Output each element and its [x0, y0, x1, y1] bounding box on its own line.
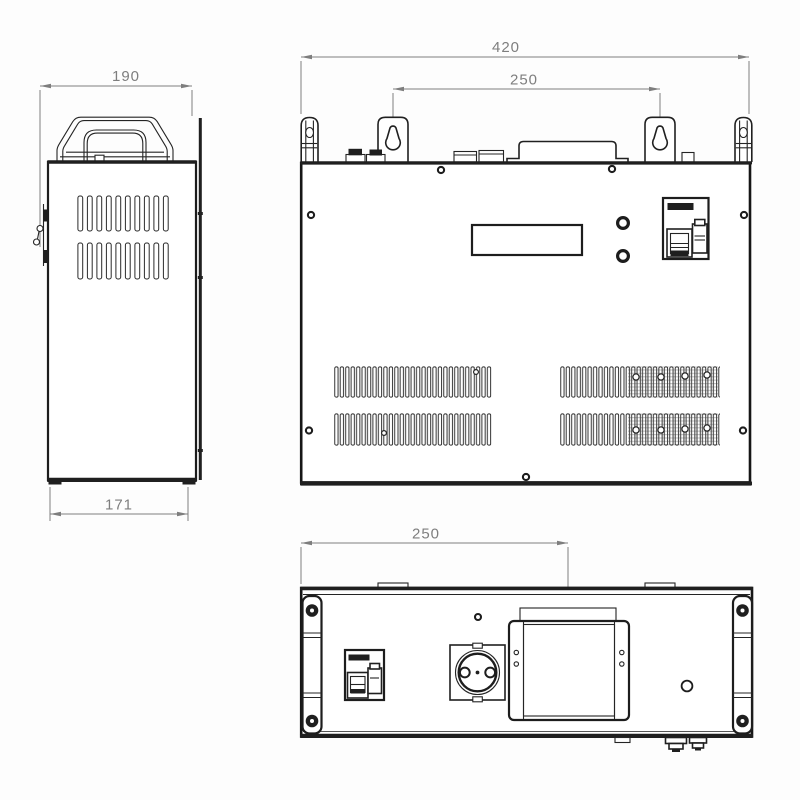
keyhole-bracket-right: [645, 117, 675, 162]
latch-block-upper: [43, 210, 49, 222]
rear-edge-tab: [198, 276, 203, 279]
side-view: 190: [34, 68, 203, 521]
cable-gland: [666, 738, 687, 744]
technical-drawing: 190: [0, 0, 800, 800]
heatsink-screw: [633, 374, 639, 380]
corner-bracket-left: [301, 118, 318, 163]
rail-screw-center: [310, 719, 314, 723]
handle-inner-profile: [63, 121, 167, 161]
gland-tab: [615, 738, 630, 743]
screw-hole: [523, 474, 529, 480]
side-top-edge: [47, 160, 197, 164]
dimension-label-420: 420: [492, 39, 520, 56]
breaker-label: [668, 203, 694, 210]
bottom-top-edge: [300, 587, 753, 590]
vent-left-row-2: [334, 413, 492, 446]
handle-outer-profile: [57, 117, 173, 161]
side-vent-row-2: [77, 242, 172, 280]
bracket-outline: [301, 118, 318, 163]
breaker-toggle-right: [368, 668, 382, 694]
arrowhead-right: [177, 512, 188, 516]
side-vent-row-1: [77, 195, 172, 232]
ground-wire: [38, 232, 40, 240]
corner-bracket-right: [735, 118, 752, 163]
cover-screw-hole: [620, 650, 624, 654]
cable-gland: [690, 738, 707, 744]
cable-gland-cap: [669, 744, 683, 750]
switch-cap: [370, 150, 383, 156]
dimension-label-250-bottom: 250: [412, 526, 440, 543]
heatsink-fins: [628, 367, 718, 398]
rail-screw-center: [310, 609, 314, 613]
control-button-upper: [618, 218, 629, 229]
heatsink-screw: [682, 373, 688, 379]
terminal-strip: [479, 151, 504, 163]
carry-handle-side: [57, 117, 173, 162]
cable-gland-tip: [672, 749, 680, 752]
top-cover-strip: [507, 142, 628, 163]
arrowhead-left: [393, 87, 404, 91]
ground-screw-ring: [34, 239, 40, 245]
drawing-canvas: 190: [0, 0, 800, 800]
arrowhead-left: [40, 84, 51, 88]
top-notch: [682, 153, 694, 163]
dimension-label-250-front: 250: [510, 72, 538, 89]
socket-pin-hole-left: [460, 668, 470, 678]
cable-gland-cap: [693, 743, 704, 748]
heatsink-screw: [633, 427, 639, 433]
breaker-toggle-right-cap: [370, 664, 380, 670]
dimension-label-190: 190: [112, 68, 140, 85]
top-switches: [346, 149, 385, 163]
rail-screw-center: [741, 609, 745, 613]
switch-cap: [349, 149, 363, 156]
screw-hole: [438, 167, 444, 173]
rail-screw-center: [741, 719, 745, 723]
screw-hole: [306, 427, 312, 433]
heatsink-screw: [704, 372, 710, 378]
side-latch: [34, 204, 49, 266]
socket-tab-bottom: [473, 697, 483, 702]
breaker-toggle-right-cap: [695, 220, 705, 226]
screw-hole: [741, 212, 747, 218]
arrowhead-left: [301, 55, 312, 59]
latch-block-lower: [43, 250, 49, 263]
top-terminal-strips: [454, 151, 504, 163]
display-window: [472, 225, 582, 255]
panel-hole: [682, 681, 693, 692]
front-bottom-edge: [300, 481, 752, 485]
bracket-hole: [306, 128, 314, 138]
screw-hole: [475, 614, 481, 620]
circuit-breaker-bottom: [345, 650, 384, 700]
heatsink-screw: [704, 425, 710, 431]
heatsink-screw: [658, 427, 664, 433]
heatsink-screw: [658, 374, 664, 380]
vent-left-row-1: [334, 366, 492, 398]
vent-detail: [382, 431, 387, 436]
dimension-label-171: 171: [105, 497, 133, 514]
toggle-grip: [671, 251, 689, 257]
bracket-outline: [735, 118, 752, 163]
cover-screw-hole: [514, 662, 518, 666]
circuit-breaker-front: [663, 198, 709, 259]
rear-edge-tab: [198, 212, 203, 215]
dimension-250-front: 250: [393, 72, 660, 127]
bracket-hole: [740, 128, 748, 138]
mount-rail-right: [733, 596, 752, 734]
screw-hole: [740, 427, 746, 433]
screw-hole: [609, 166, 615, 172]
vent-detail: [474, 370, 479, 375]
breaker-label: [349, 655, 370, 661]
cover-screw-hole: [620, 662, 624, 666]
front-top-edge: [300, 161, 752, 164]
cable-gland-tip: [695, 748, 701, 751]
rear-panel-edge: [199, 118, 202, 480]
power-socket: [450, 643, 505, 702]
arrowhead-right: [649, 87, 660, 91]
foot-right: [183, 481, 196, 485]
terminal-strip: [454, 152, 477, 163]
arrowhead-right: [181, 84, 192, 88]
front-view: 420 250: [300, 39, 752, 486]
bracket-outline: [645, 117, 675, 162]
cable-glands: [615, 738, 707, 753]
side-bottom-edge: [47, 478, 197, 482]
socket-tab-top: [473, 643, 483, 648]
cover-body: [509, 621, 629, 720]
arrowhead-right: [738, 55, 749, 59]
side-body: [47, 118, 203, 485]
socket-pin-hole-right: [485, 668, 495, 678]
rear-edge-tab: [198, 449, 203, 452]
dimension-171: 171: [50, 487, 188, 521]
socket-center-pin: [476, 671, 480, 675]
mount-rail-left: [303, 596, 322, 734]
arrowhead-left: [50, 512, 61, 516]
toggle-grip: [351, 689, 366, 694]
arrowhead-right: [557, 541, 568, 545]
control-button-lower: [618, 251, 629, 262]
heatsink-screw: [682, 426, 688, 432]
cover-screw-hole: [514, 650, 518, 654]
ground-screw-ring: [37, 226, 43, 232]
bottom-view: 250: [300, 526, 753, 753]
arrowhead-left: [301, 541, 312, 545]
breaker-toggle-right: [693, 224, 708, 253]
terminal-cover: [509, 608, 629, 720]
screw-hole: [308, 212, 314, 218]
foot-left: [49, 481, 62, 485]
